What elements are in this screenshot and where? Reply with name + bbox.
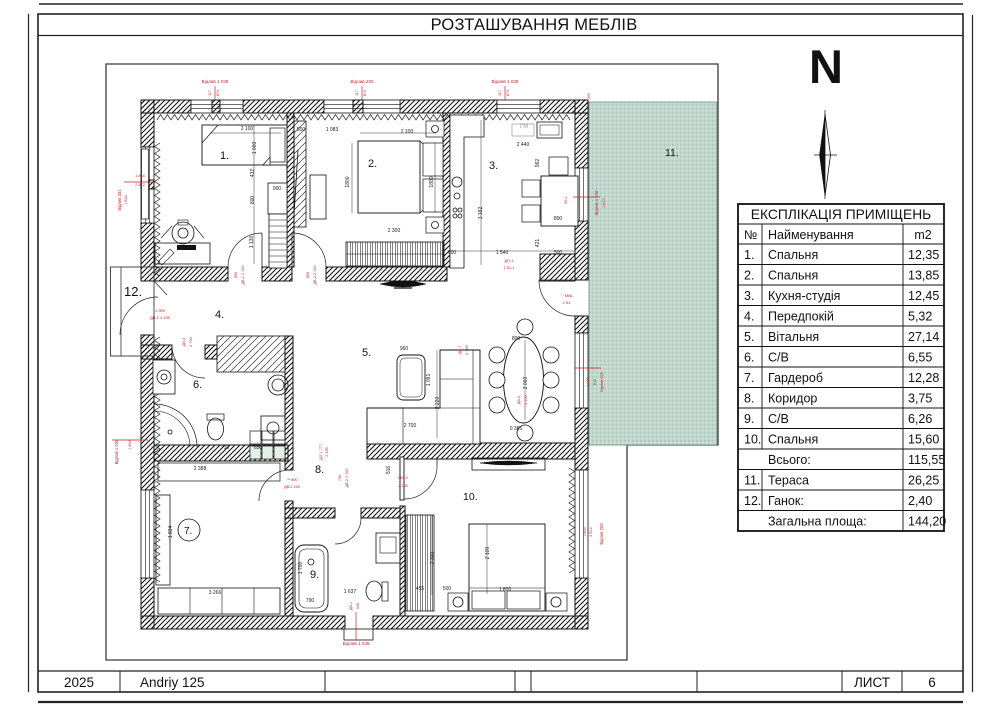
svg-text:С/В: С/В xyxy=(768,351,789,365)
svg-text:ДВ-2 2 100: ДВ-2 2 100 xyxy=(150,315,171,320)
svg-text:900: 900 xyxy=(273,186,282,192)
svg-text:Andriy 125: Andriy 125 xyxy=(140,675,205,690)
svg-text:ДВ-1: ДВ-1 xyxy=(349,602,353,610)
svg-text:0 365: 0 365 xyxy=(510,426,523,432)
svg-text:2 220: 2 220 xyxy=(435,397,441,410)
svg-text:3,75: 3,75 xyxy=(908,392,932,406)
svg-text:С/В: С/В xyxy=(768,412,789,426)
svg-text:11.: 11. xyxy=(665,147,679,159)
svg-text:7.: 7. xyxy=(184,526,192,537)
svg-text:12,35: 12,35 xyxy=(908,248,939,262)
svg-text:874: 874 xyxy=(506,90,510,96)
svg-text:650: 650 xyxy=(254,445,263,451)
svg-text:2025: 2025 xyxy=(64,675,94,690)
svg-text:940: 940 xyxy=(356,603,360,609)
svg-text:Тераса: Тераса xyxy=(768,474,809,488)
svg-text:Відлив 1 028: Відлив 1 028 xyxy=(594,190,599,215)
svg-text:1 083: 1 083 xyxy=(326,127,339,133)
svg-text:26,25: 26,25 xyxy=(908,474,939,488)
svg-text:421: 421 xyxy=(535,239,541,248)
svg-text:800: 800 xyxy=(250,196,256,205)
svg-text:516: 516 xyxy=(386,466,392,475)
svg-text:117: 117 xyxy=(498,90,502,96)
svg-text:15,60: 15,60 xyxy=(908,433,939,447)
svg-text:РОЗТАШУВАННЯ МЕБЛІВ: РОЗТАШУВАННЯ МЕБЛІВ xyxy=(431,16,638,34)
svg-text:500: 500 xyxy=(443,586,452,592)
svg-text:"" МВL: "" МВL xyxy=(561,293,574,298)
svg-text:ДО 1 777: ДО 1 777 xyxy=(319,444,323,460)
svg-text:9.: 9. xyxy=(744,412,754,426)
svg-text:1 000: 1 000 xyxy=(252,142,258,155)
svg-text:850: 850 xyxy=(234,272,238,278)
svg-text:2.: 2. xyxy=(368,158,377,170)
svg-text:144,20: 144,20 xyxy=(908,515,946,529)
svg-text:2 100: 2 100 xyxy=(524,395,528,405)
svg-text:Гардероб: Гардероб xyxy=(768,371,823,385)
svg-text:2 060: 2 060 xyxy=(523,377,529,390)
svg-text:Відлив 331: Відлив 331 xyxy=(117,189,122,211)
svg-text:1 834: 1 834 xyxy=(168,526,174,539)
svg-text:8.: 8. xyxy=(315,464,324,476)
svg-text:6,26: 6,26 xyxy=(908,412,932,426)
svg-text:ДВ-3: ДВ-3 xyxy=(182,338,186,346)
svg-text:Відлив 1 038: Відлив 1 038 xyxy=(343,641,370,646)
svg-text:Спальня: Спальня xyxy=(768,269,818,283)
svg-text:1 834: 1 834 xyxy=(583,527,587,537)
svg-text:1 800: 1 800 xyxy=(499,587,512,593)
svg-text:874: 874 xyxy=(363,90,367,96)
svg-text:6.: 6. xyxy=(193,379,202,391)
svg-text:2 100: 2 100 xyxy=(398,484,408,488)
svg-text:612: 612 xyxy=(593,379,597,385)
svg-text:Спальня: Спальня xyxy=(768,433,818,447)
svg-text:1 700: 1 700 xyxy=(298,562,304,575)
svg-text:432: 432 xyxy=(250,169,256,178)
svg-text:2 512: 2 512 xyxy=(135,183,145,187)
svg-text:2 100: 2 100 xyxy=(401,129,414,135)
svg-text:Всього:: Всього: xyxy=(768,453,811,467)
svg-text:27,14: 27,14 xyxy=(908,330,939,344)
svg-text:5.: 5. xyxy=(744,330,754,344)
svg-text:12,45: 12,45 xyxy=(908,289,939,303)
svg-text:5.: 5. xyxy=(362,347,371,359)
svg-text:6: 6 xyxy=(928,675,936,690)
svg-text:m2: m2 xyxy=(914,228,931,242)
svg-text:295: 295 xyxy=(587,93,591,99)
svg-text:1800: 1800 xyxy=(345,176,351,187)
svg-text:12.: 12. xyxy=(124,284,142,299)
svg-text:Кухня-студія: Кухня-студія xyxy=(768,289,840,303)
svg-text:1 834: 1 834 xyxy=(135,174,145,178)
svg-text:Відлив 828: Відлив 828 xyxy=(600,372,604,391)
svg-text:2 388: 2 388 xyxy=(194,466,207,472)
svg-text:6.: 6. xyxy=(744,351,754,365)
svg-text:2 100: 2 100 xyxy=(241,126,254,132)
svg-text:ЛИСТ: ЛИСТ xyxy=(854,675,890,690)
svg-text:710: 710 xyxy=(221,445,230,451)
svg-text:™ 800: ™ 800 xyxy=(286,478,297,482)
svg-text:850: 850 xyxy=(306,272,310,278)
svg-text:2 100: 2 100 xyxy=(485,547,491,560)
svg-text:96.1: 96.1 xyxy=(564,196,568,203)
svg-text:800: 800 xyxy=(554,216,563,222)
svg-text:ДВ-5: ДВ-5 xyxy=(517,396,521,404)
svg-text:3 266: 3 266 xyxy=(209,590,222,596)
svg-text:962: 962 xyxy=(535,159,541,168)
svg-text:Вітальня: Вітальня xyxy=(768,330,819,344)
svg-text:№: № xyxy=(744,228,757,242)
svg-text:ГМ: ГМ xyxy=(520,124,528,130)
svg-text:1 091: 1 091 xyxy=(426,374,432,387)
svg-text:ДВ-7: ДВ-7 xyxy=(458,346,462,354)
svg-text:Відлив 1 038: Відлив 1 038 xyxy=(492,79,519,84)
svg-text:ДВ-2 2 100: ДВ-2 2 100 xyxy=(313,265,317,284)
svg-text:2 612: 2 612 xyxy=(589,527,593,537)
svg-text:Передпокій: Передпокій xyxy=(768,310,834,324)
svg-text:3.: 3. xyxy=(744,289,754,303)
svg-text:1 637: 1 637 xyxy=(344,589,357,595)
svg-text:1 828: 1 828 xyxy=(586,377,590,387)
svg-text:ДВ-2 100: ДВ-2 100 xyxy=(284,485,300,489)
svg-text:6,55: 6,55 xyxy=(908,351,932,365)
svg-text:2 300: 2 300 xyxy=(430,552,436,565)
svg-text:ДВ-1 2 100: ДВ-1 2 100 xyxy=(241,265,245,284)
svg-text:117: 117 xyxy=(355,90,359,96)
svg-text:2 440: 2 440 xyxy=(517,142,530,148)
svg-text:ДВ-2 2 100: ДВ-2 2 100 xyxy=(345,468,349,487)
svg-text:ДП-1: ДП-1 xyxy=(505,259,514,263)
svg-text:2,40: 2,40 xyxy=(908,494,932,508)
svg-text:12.: 12. xyxy=(744,494,761,508)
svg-text:7.: 7. xyxy=(744,371,754,385)
svg-text:1800: 1800 xyxy=(429,176,435,187)
svg-text:790: 790 xyxy=(306,598,315,604)
svg-text:800: 800 xyxy=(512,336,521,342)
svg-text:Відлив 1 038: Відлив 1 038 xyxy=(114,439,119,464)
svg-text:Коридор: Коридор xyxy=(768,392,817,406)
svg-text:1 834: 1 834 xyxy=(124,195,128,205)
svg-text:Загальна площа:: Загальна площа: xyxy=(768,515,867,529)
svg-text:2.: 2. xyxy=(744,269,754,283)
svg-text:1.: 1. xyxy=(220,150,229,162)
svg-text:2 700: 2 700 xyxy=(189,337,193,347)
svg-text:Ганок:: Ганок: xyxy=(768,494,804,508)
svg-text:12,28: 12,28 xyxy=(908,371,939,385)
svg-text:874: 874 xyxy=(216,90,220,96)
svg-text:N: N xyxy=(809,40,843,93)
svg-text:9.: 9. xyxy=(310,569,319,581)
svg-text:700: 700 xyxy=(338,475,342,481)
svg-text:1 900: 1 900 xyxy=(155,308,166,313)
svg-text:800-2: 800-2 xyxy=(398,476,408,480)
svg-text:2 495: 2 495 xyxy=(325,447,329,457)
svg-text:5,32: 5,32 xyxy=(908,310,932,324)
svg-text:455: 455 xyxy=(416,586,425,592)
svg-text:2 51.: 2 51. xyxy=(563,300,572,305)
svg-text:2 700: 2 700 xyxy=(404,423,417,429)
svg-text:ЕКСПЛІКАЦІЯ ПРИМІЩЕНЬ: ЕКСПЛІКАЦІЯ ПРИМІЩЕНЬ xyxy=(751,207,931,222)
svg-text:11.: 11. xyxy=(744,474,760,488)
svg-text:4.: 4. xyxy=(215,309,224,321)
svg-text:Найменування: Найменування xyxy=(768,228,854,242)
svg-text:3.: 3. xyxy=(489,160,498,172)
svg-text:Спальня: Спальня xyxy=(768,248,818,262)
svg-text:Відлив 1 038: Відлив 1 038 xyxy=(202,79,229,84)
svg-text:13,85: 13,85 xyxy=(908,269,939,283)
svg-text:Відлив 200: Відлив 200 xyxy=(351,79,374,84)
svg-text:960: 960 xyxy=(400,346,409,352)
svg-text:Відлив 208: Відлив 208 xyxy=(599,523,604,545)
svg-text:10.: 10. xyxy=(463,491,478,503)
svg-text:2 300: 2 300 xyxy=(388,228,401,234)
svg-text:1 874: 1 874 xyxy=(602,198,606,208)
svg-text:115,55: 115,55 xyxy=(908,453,945,467)
svg-text:500: 500 xyxy=(297,127,306,133)
svg-text:8.: 8. xyxy=(744,392,754,406)
svg-text:2 51-1: 2 51-1 xyxy=(504,266,515,270)
svg-text:2 100: 2 100 xyxy=(465,345,469,355)
svg-text:1.: 1. xyxy=(744,248,754,262)
svg-text:4.: 4. xyxy=(744,310,754,324)
svg-text:117: 117 xyxy=(208,90,212,96)
svg-text:1 834: 1 834 xyxy=(128,440,132,450)
svg-text:10.: 10. xyxy=(744,433,761,447)
